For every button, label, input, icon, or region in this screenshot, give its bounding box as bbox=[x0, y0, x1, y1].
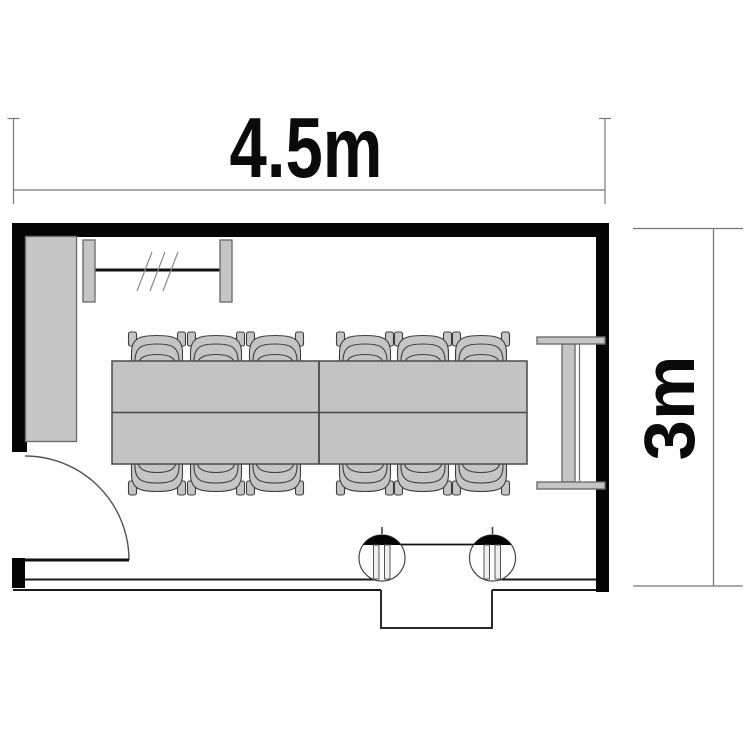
left-wall-stub bbox=[12, 558, 25, 588]
left-wall bbox=[12, 223, 27, 452]
board-bracket-left bbox=[83, 240, 95, 302]
entrance-column-right bbox=[470, 527, 516, 581]
board-bracket-right bbox=[220, 240, 232, 302]
door-swing-arc bbox=[25, 456, 129, 560]
wall-mounted-board bbox=[83, 240, 232, 302]
floor-plan-svg: 4.5m 3m bbox=[0, 0, 750, 750]
width-dimension-label: 4.5m bbox=[230, 101, 383, 196]
entrance-alcove bbox=[381, 590, 492, 628]
top-wall bbox=[12, 223, 609, 237]
entrance-column-left bbox=[359, 527, 405, 581]
swing-door bbox=[24, 456, 129, 560]
floor-plan: 4.5m 3m bbox=[0, 0, 750, 750]
entrance bbox=[359, 527, 516, 581]
right-wall bbox=[596, 223, 609, 592]
width-dimension: 4.5m bbox=[8, 101, 612, 204]
side-partition bbox=[537, 337, 605, 489]
bottom-wall bbox=[13, 580, 596, 591]
storage-cabinet bbox=[26, 237, 77, 442]
depth-dimension: 3m bbox=[631, 228, 743, 586]
conference-table bbox=[112, 361, 527, 464]
depth-dimension-label: 3m bbox=[631, 356, 710, 461]
